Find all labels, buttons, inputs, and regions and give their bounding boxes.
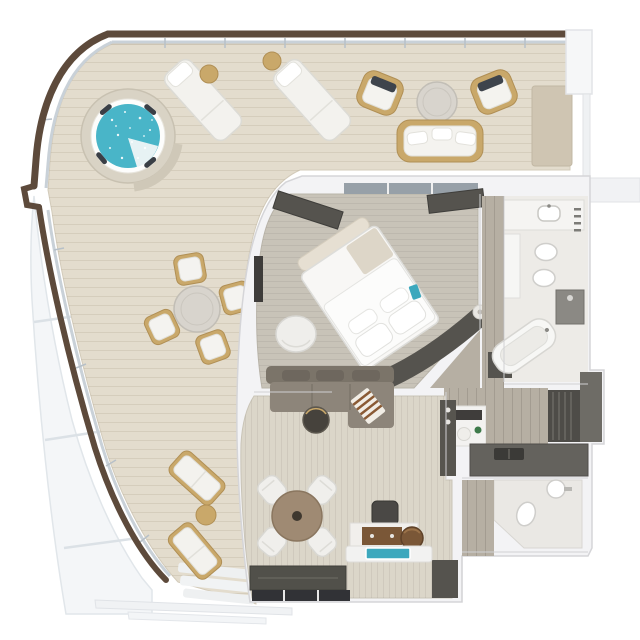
vanity-stool [458,428,471,441]
round-side-table [200,65,218,83]
floor-plan-render [0,0,640,640]
desk-drawers [362,527,402,545]
bath-tall-cabinet [504,234,520,298]
entry-floor-texture [462,480,494,556]
outdoor-mat [532,86,572,166]
bidet [533,270,555,287]
toilet [535,244,557,261]
sink-faucet [547,204,551,208]
outdoor-sofa [397,120,483,162]
vanity-sink [538,206,560,221]
drawer-knob [370,534,374,538]
corner-pillar [566,30,592,94]
living-room [241,366,458,601]
vanity-mirror [452,410,482,420]
tall-cabinet [580,372,602,442]
floor-plan-canvas [0,0,640,640]
deck-side-table [196,505,216,525]
side-wall [583,94,590,180]
vanity-plant [475,427,482,434]
bedroom-tv-panel [254,256,263,302]
tv-screen [366,548,410,559]
dining-centerpiece [292,511,302,521]
round-side-table [263,52,281,70]
desk-chair [372,501,398,525]
sofa-pillow [316,370,344,381]
sink-spout [564,487,572,491]
coffee-table [303,407,329,433]
outdoor-dining-chair [173,252,208,287]
powder-room [462,480,582,556]
sofa-pillow [352,370,380,381]
drawer-knob [390,534,394,538]
kitchen-floor-texture [486,390,548,444]
pedestal-sink [547,480,565,498]
bottom-window-band [252,590,350,601]
shoe-cabinet [432,560,458,598]
kitchen-counter [470,444,588,476]
sofa-pillow [282,370,310,381]
shower-head [567,295,573,301]
